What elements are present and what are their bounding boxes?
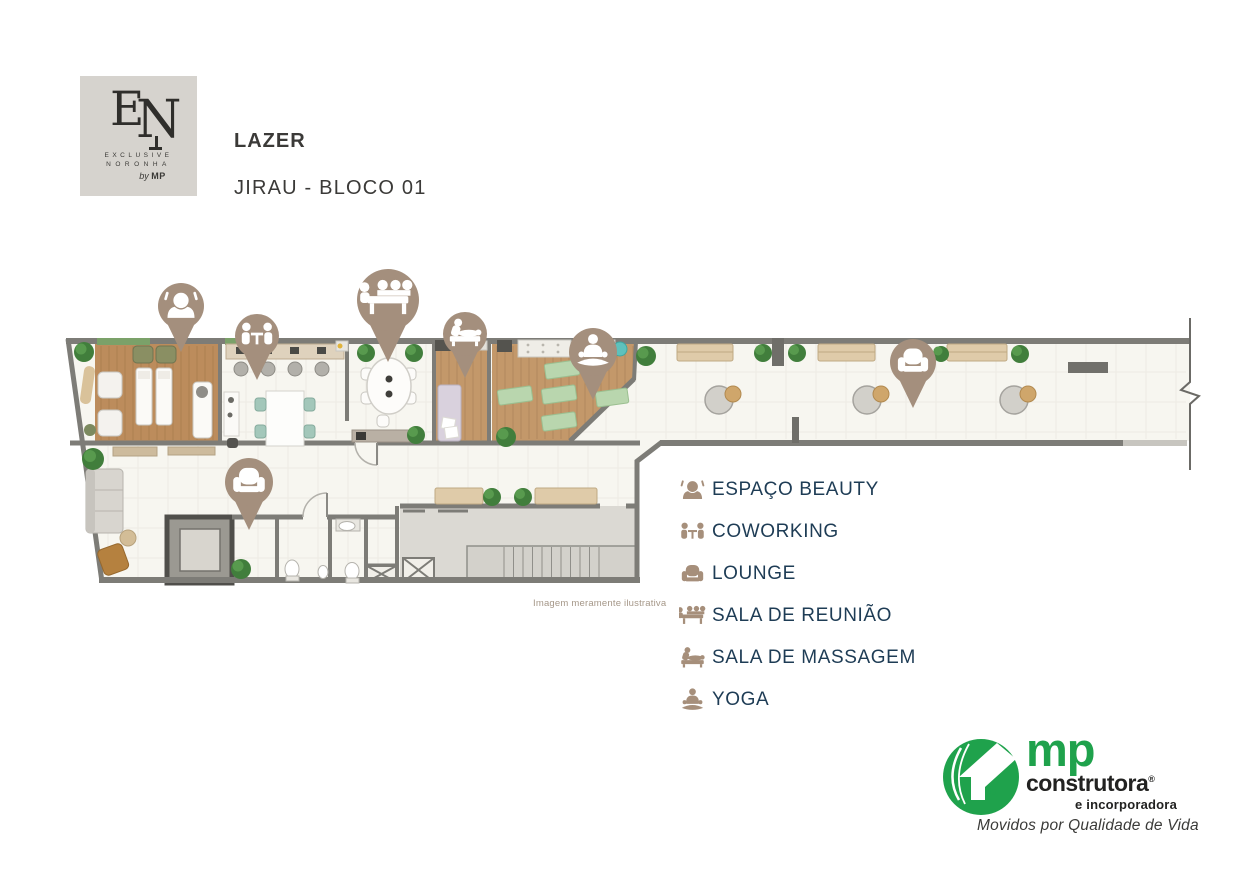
lounge-icon: [679, 561, 706, 588]
registered-trademark: ®: [1148, 774, 1154, 784]
yoga-icon: [679, 687, 706, 714]
legend-item-coworking: COWORKING: [672, 519, 916, 545]
mp-logo-text: mp construtora® e incorporadora: [1026, 731, 1186, 812]
legend-label: YOGA: [712, 689, 769, 711]
disclaimer-text: Imagem meramente ilustrativa: [533, 598, 666, 609]
espaco-beauty-icon: [679, 477, 706, 504]
legend-item-yoga: YOGA: [672, 687, 916, 713]
legend-label: SALA DE MASSAGEM: [712, 647, 916, 669]
mp-brand-name: mp: [1026, 731, 1186, 770]
brochure-page: { "header": { "title": "LAZER", "subtitl…: [0, 0, 1250, 896]
legend-item-sala-de-massagem: SALA DE MASSAGEM: [672, 645, 916, 671]
elevator-shaft: [167, 517, 232, 583]
legend: ESPAÇO BEAUTY COWORKING LOUNGE SALA DE R…: [672, 477, 916, 713]
legend-item-espaco-beauty: ESPAÇO BEAUTY: [672, 477, 916, 503]
legend-label: LOUNGE: [712, 563, 796, 585]
stair-landing: [400, 506, 637, 580]
legend-label: ESPAÇO BEAUTY: [712, 479, 879, 501]
sala-de-reuniao-icon: [679, 603, 706, 630]
legend-item-sala-de-reuniao: SALA DE REUNIÃO: [672, 603, 916, 629]
mp-logo-mark: [941, 736, 1021, 818]
legend-item-lounge: LOUNGE: [672, 561, 916, 587]
sala-de-massagem-icon: [679, 645, 706, 672]
legend-label: SALA DE REUNIÃO: [712, 605, 892, 627]
mp-brand-name2: construtora®: [1026, 772, 1186, 795]
coworking-icon: [679, 519, 706, 546]
mp-brand-name3: e incorporadora: [1026, 797, 1177, 812]
mp-tagline: Movidos por Qualidade de Vida: [977, 817, 1199, 835]
legend-label: COWORKING: [712, 521, 839, 543]
